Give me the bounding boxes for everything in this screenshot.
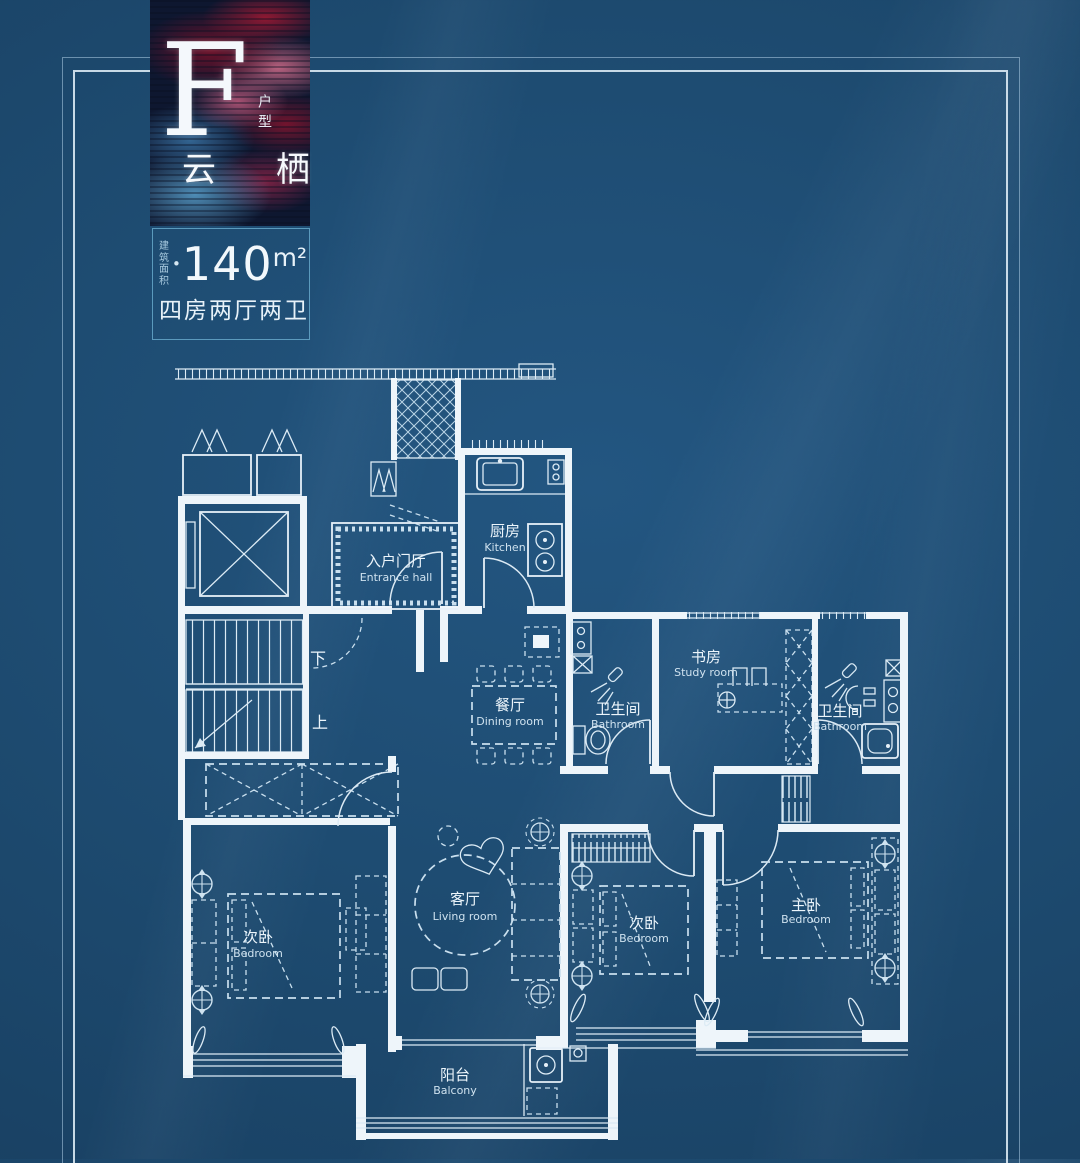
bedroom-left-label-en: Bedroom xyxy=(233,947,283,960)
curtain-icon xyxy=(190,1025,207,1054)
kitchen-label-en: Kitchen xyxy=(484,541,525,554)
duct-shaft-top xyxy=(371,378,461,532)
dot-separator: • xyxy=(172,255,181,273)
bed-icon xyxy=(228,894,340,998)
stair-down-label: 下 xyxy=(310,649,326,668)
type-letter: F xyxy=(160,28,249,156)
elevator xyxy=(178,496,307,614)
room-bathroom2: 卫生间 Bathroom xyxy=(812,612,908,766)
study-label-zh: 书房 xyxy=(691,648,721,666)
floorplan-page: { "colors": { "background": "#1d4a6f", "… xyxy=(0,0,1080,1159)
kitchen-door-arc xyxy=(484,558,534,608)
storage-closet xyxy=(206,764,398,816)
study-door-arc xyxy=(670,772,714,816)
room-bathroom1: 卫生间 Bathroom xyxy=(566,612,659,766)
entrance-label-zh: 入户门厅 xyxy=(366,552,426,570)
entrance-label-en: Entrance hall xyxy=(360,571,433,584)
pillow-icon xyxy=(851,868,864,906)
bedroom-middle-door-arc xyxy=(648,830,694,876)
ac-zigzag-icon xyxy=(192,430,227,452)
vent-shaft xyxy=(786,630,812,764)
bathroom1-label-en: Bathroom xyxy=(591,718,645,731)
chair-icon xyxy=(505,748,523,764)
room-kitchen: 厨房 Kitchen xyxy=(458,440,572,614)
vent-icon xyxy=(192,985,212,1015)
living-label-zh: 客厅 xyxy=(450,890,480,908)
floor-lamp-icon xyxy=(526,980,554,1008)
curtain-icon xyxy=(846,997,866,1028)
chair-icon xyxy=(533,748,551,764)
chair-icon xyxy=(477,748,495,764)
vent-icon xyxy=(875,839,895,869)
master-label-en: Bedroom xyxy=(781,913,831,926)
area-value: 140 xyxy=(182,241,273,287)
chair-icon xyxy=(505,666,523,682)
stair-up-label: 上 xyxy=(312,713,328,732)
decor-circle-icon xyxy=(438,826,458,846)
meter-box-icon xyxy=(571,622,591,654)
hall-closet-icon xyxy=(782,776,810,822)
room-entrance: 入户门厅 Entrance hall xyxy=(332,523,460,609)
bedroom-middle-label-en: Bedroom xyxy=(619,932,669,945)
ac-zigzag-icon xyxy=(262,430,297,452)
area-row: 建筑 面积 • 140 m² xyxy=(159,241,303,287)
shower-icon xyxy=(825,663,857,701)
corridor-walls xyxy=(560,766,908,832)
stove-icon xyxy=(528,524,562,576)
chair-icon xyxy=(477,666,495,682)
dining-label-en: Dining room xyxy=(476,715,543,728)
toilet-icon xyxy=(573,726,585,754)
bathroom1-label-zh: 卫生间 xyxy=(595,700,640,718)
sofa-icon xyxy=(512,848,560,980)
bedroom-middle-label-zh: 次卧 xyxy=(629,914,659,932)
living-label-en: Living room xyxy=(433,910,498,923)
bedroom-left-label-zh: 次卧 xyxy=(243,928,273,946)
kitchen-label-zh: 厨房 xyxy=(490,522,520,540)
pillow-icon xyxy=(603,892,616,926)
curtain-icon xyxy=(329,1025,346,1054)
project-name: 云栖 xyxy=(182,142,370,191)
vent-icon xyxy=(572,961,592,991)
tv-bench-icon xyxy=(412,968,438,990)
bathroom2-label-en: Bathroom xyxy=(813,720,867,733)
ac-zigzag-icon xyxy=(373,470,395,492)
pillow-icon xyxy=(851,910,864,948)
pillow-icon xyxy=(603,932,616,966)
balcony-label-zh: 阳台 xyxy=(440,1066,470,1084)
curtain-icon xyxy=(568,993,588,1024)
washbasin-icon xyxy=(884,680,902,722)
area-info-box: 建筑 面积 • 140 m² 四房两厅两卫 xyxy=(152,228,310,340)
room-master: 主卧 Bedroom xyxy=(696,830,908,1055)
site-boundary-hatch xyxy=(175,364,556,379)
dresser-icon xyxy=(717,880,737,956)
bedroom-left-door-arc xyxy=(338,772,392,826)
type-caption: 户型 xyxy=(254,94,274,134)
chair-icon xyxy=(533,666,551,682)
stairs: 下 上 xyxy=(178,606,448,820)
area-prefix: 建筑 面积 xyxy=(159,241,169,287)
floor-lamp-icon xyxy=(526,818,554,846)
vent-icon xyxy=(875,953,895,983)
dining-label-zh: 餐厅 xyxy=(495,696,525,714)
vent-icon xyxy=(192,869,212,899)
tv-bench-icon xyxy=(441,968,467,990)
room-living: 客厅 Living room xyxy=(388,818,562,1050)
type-badge: F 户型 云栖 xyxy=(150,0,310,226)
ac-platform xyxy=(183,430,301,495)
room-balcony: 阳台 Balcony xyxy=(356,1044,618,1140)
balcony-label-en: Balcony xyxy=(433,1084,477,1097)
area-unit: m² xyxy=(273,243,307,272)
bathroom2-label-zh: 卫生间 xyxy=(817,702,862,720)
master-label-zh: 主卧 xyxy=(791,896,821,914)
vent-icon xyxy=(572,861,592,891)
layout-text: 四房两厅两卫 xyxy=(159,291,303,325)
study-label-en: Study room xyxy=(674,666,738,679)
desk-icon xyxy=(356,876,386,992)
study-window xyxy=(687,612,760,619)
room-bedroom-middle: 次卧 Bedroom xyxy=(560,824,716,1048)
room-bedroom-left: 次卧 Bedroom xyxy=(183,756,396,1078)
room-dining: 餐厅 Dining room xyxy=(472,627,559,764)
master-door-arc xyxy=(723,830,778,885)
monitor-icon xyxy=(733,668,766,686)
